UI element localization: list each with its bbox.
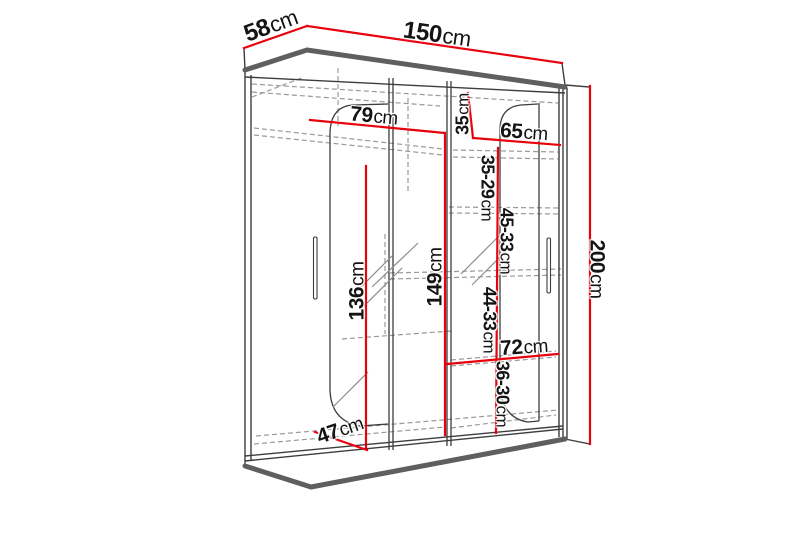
dimension-label-mid-hanging-height: 149cm <box>425 248 446 307</box>
dimension-value: 36-30 <box>493 361 513 405</box>
dimension-unit: cm <box>373 106 399 129</box>
dimension-unit: cm <box>586 274 607 298</box>
dimension-value: 45-33 <box>497 208 517 252</box>
wardrobe-line-drawing <box>0 0 800 533</box>
crown-and-plinth-edges <box>245 50 565 487</box>
dimension-value: 149 <box>424 273 447 307</box>
dimension-label-left-rod-width: 79cm <box>349 103 398 128</box>
dimension-unit: cm <box>497 252 516 274</box>
dimension-label-right-top-shelf-height: 35cm <box>454 93 473 135</box>
dimension-label-height-right: 200cm <box>587 240 608 299</box>
dimension-value: 65 <box>499 119 523 144</box>
dimension-value: 79 <box>349 102 373 127</box>
right-door-edge <box>447 81 451 446</box>
wardrobe-outline <box>244 26 590 464</box>
dimension-value: 35-29 <box>478 155 498 199</box>
dimension-unit: cm <box>441 23 473 52</box>
dimension-value: 44-33 <box>480 287 500 331</box>
dimension-value: 72 <box>499 336 523 361</box>
dimension-value: 200 <box>586 240 609 274</box>
dimension-unit: cm <box>478 199 497 221</box>
dimension-unit: cm <box>426 248 447 272</box>
wardrobe-dimension-diagram: 58cm 150cm 200cm 79cm 35cm 65cm 35-29cm … <box>0 0 800 533</box>
dimension-label-right-shelf-width: 65cm <box>499 120 548 144</box>
dimension-label-bottom-shelf-width: 72cm <box>499 335 548 359</box>
dimension-lines <box>244 26 590 450</box>
left-door-handle <box>314 237 318 299</box>
dimension-value: 35 <box>453 116 473 135</box>
dimension-unit: cm <box>493 405 512 427</box>
dimension-unit: cm <box>454 93 473 115</box>
dimension-value: 150 <box>402 16 444 48</box>
right-door-handle <box>547 238 551 293</box>
dimension-label-left-hanging-height: 136cm <box>347 262 368 321</box>
dimension-label-right-gap-1: 35-29cm <box>478 155 497 221</box>
dimension-unit: cm <box>523 122 549 145</box>
dimension-label-right-gap-3: 44-33cm <box>480 287 499 353</box>
dimension-label-right-gap-4: 36-30cm <box>493 361 512 427</box>
dimension-unit: cm <box>348 262 369 286</box>
dimension-unit: cm <box>480 331 499 353</box>
left-door-edge <box>389 78 393 450</box>
dimension-unit: cm <box>523 336 549 359</box>
dimension-label-right-gap-2: 45-33cm <box>497 208 516 274</box>
dimension-value: 136 <box>346 287 369 321</box>
